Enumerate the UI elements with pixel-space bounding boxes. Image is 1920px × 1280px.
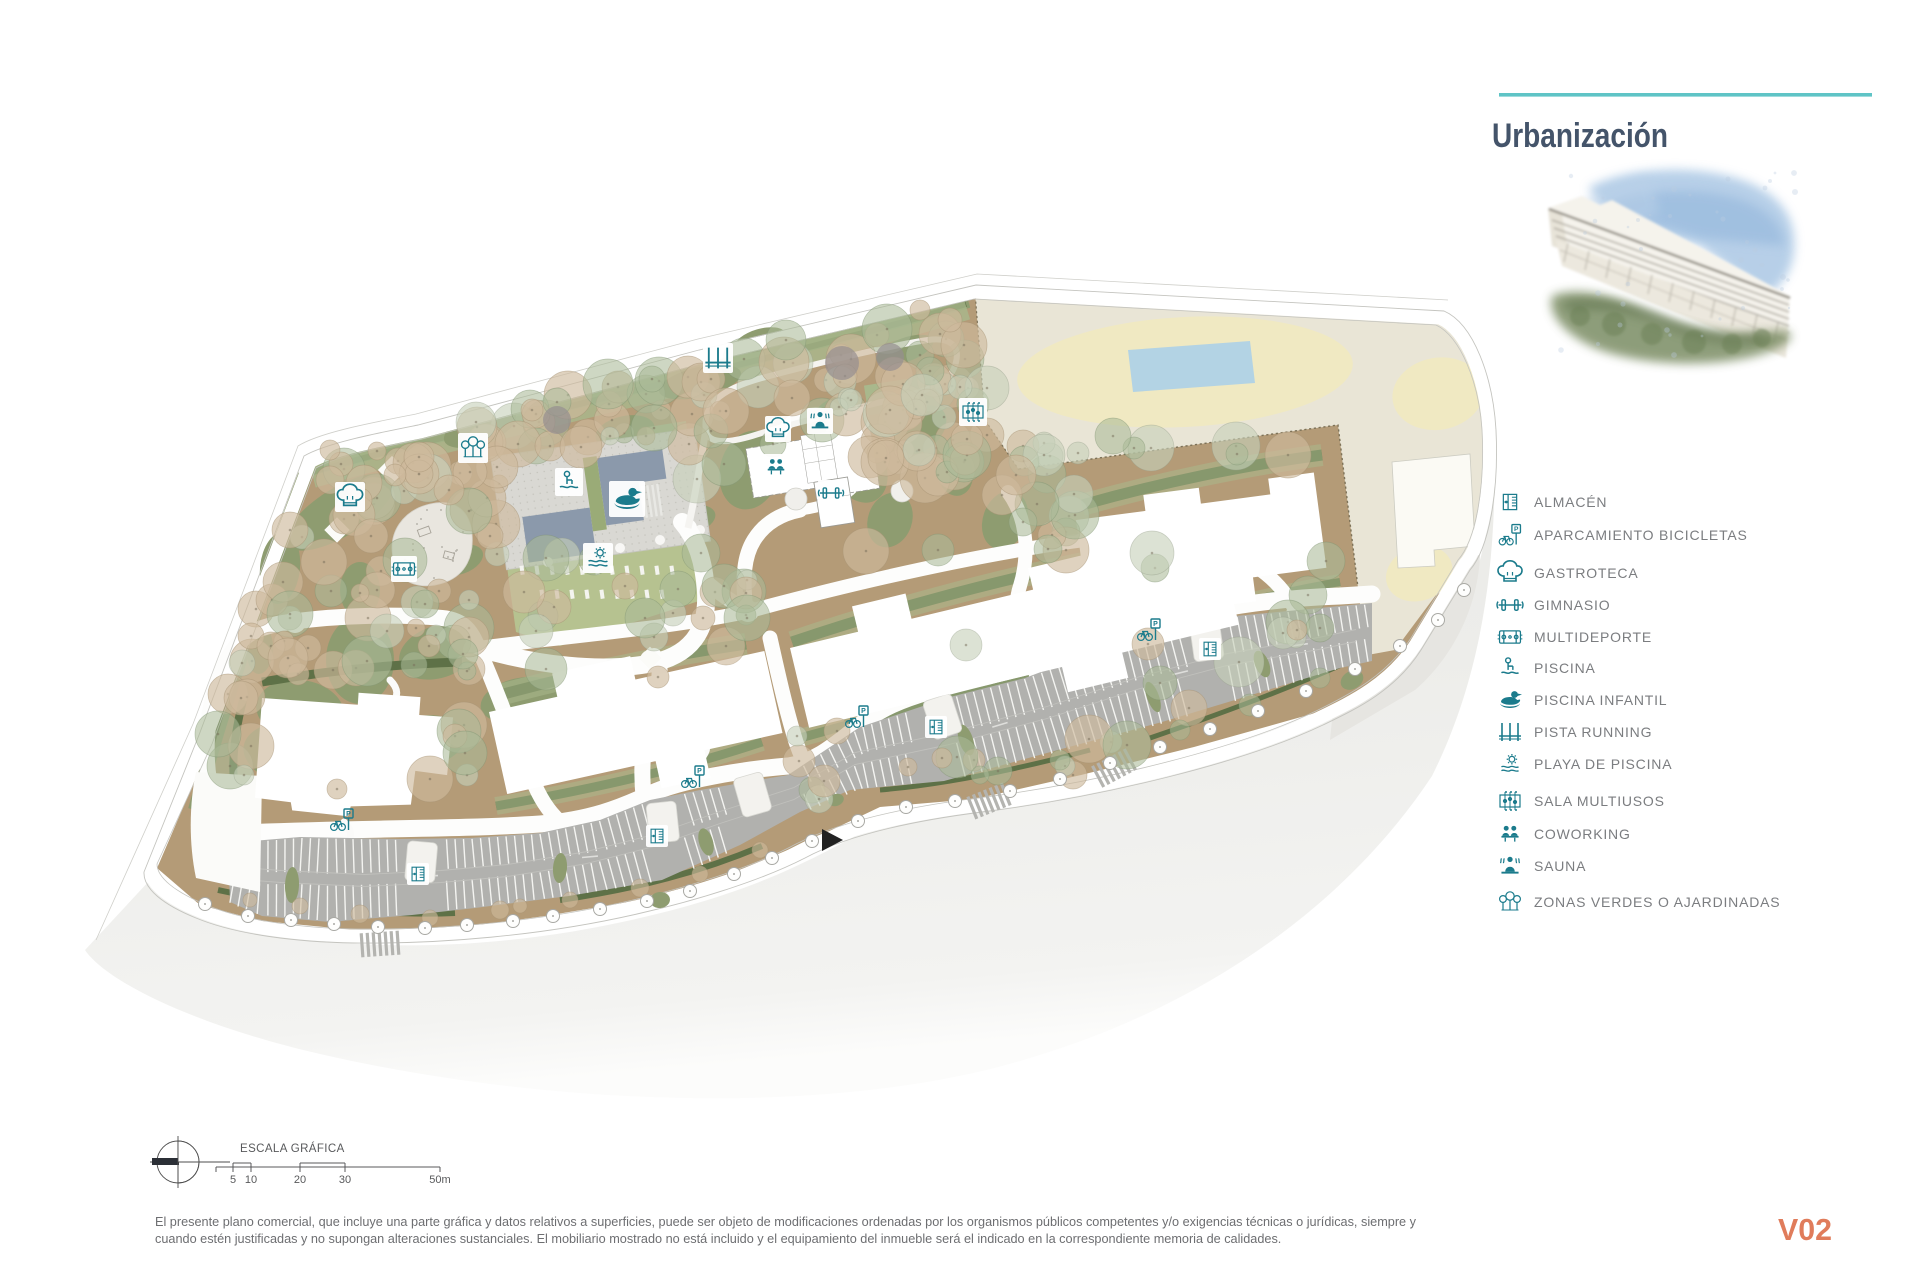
- svg-text:MULTIDEPORTE: MULTIDEPORTE: [1534, 629, 1652, 645]
- svg-text:ZONAS VERDES O AJARDINADAS: ZONAS VERDES O AJARDINADAS: [1534, 894, 1780, 910]
- svg-text:20: 20: [294, 1174, 306, 1186]
- svg-text:V02: V02: [1778, 1212, 1832, 1247]
- svg-text:ALMACÉN: ALMACÉN: [1534, 494, 1607, 510]
- svg-text:COWORKING: COWORKING: [1534, 826, 1631, 842]
- svg-text:Urbanización: Urbanización: [1492, 117, 1668, 155]
- svg-text:PISCINA: PISCINA: [1534, 660, 1596, 676]
- svg-text:SAUNA: SAUNA: [1534, 858, 1586, 874]
- svg-text:cuando estén justificadas y no: cuando estén justificadas y no supongan …: [155, 1232, 1281, 1246]
- svg-text:SALA MULTIUSOS: SALA MULTIUSOS: [1534, 793, 1665, 809]
- svg-text:GASTROTECA: GASTROTECA: [1534, 565, 1638, 581]
- svg-text:PISTA RUNNING: PISTA RUNNING: [1534, 724, 1652, 740]
- svg-text:50m: 50m: [429, 1174, 450, 1186]
- svg-text:ESCALA GRÁFICA: ESCALA GRÁFICA: [240, 1142, 345, 1155]
- svg-text:PLAYA DE PISCINA: PLAYA DE PISCINA: [1534, 756, 1672, 772]
- svg-text:30: 30: [339, 1174, 351, 1186]
- svg-text:El presente plano comercial, q: El presente plano comercial, que incluye…: [155, 1215, 1417, 1229]
- svg-text:5: 5: [230, 1174, 236, 1186]
- svg-text:GIMNASIO: GIMNASIO: [1534, 597, 1610, 613]
- svg-text:PISCINA INFANTIL: PISCINA INFANTIL: [1534, 692, 1667, 708]
- svg-text:10: 10: [245, 1174, 257, 1186]
- svg-text:APARCAMIENTO BICICLETAS: APARCAMIENTO BICICLETAS: [1534, 527, 1748, 543]
